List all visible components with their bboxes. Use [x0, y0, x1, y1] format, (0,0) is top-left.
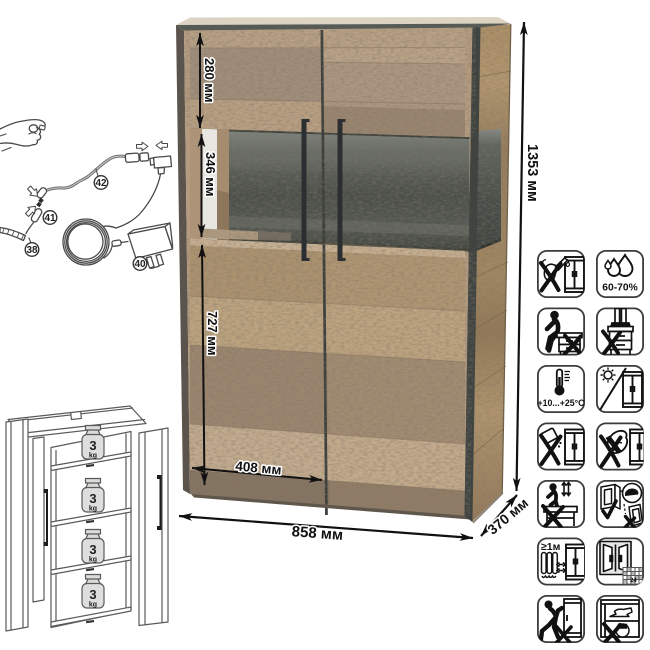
svg-text:346 мм: 346 мм: [203, 152, 218, 197]
svg-text:≥1м: ≥1м: [541, 541, 561, 553]
svg-text:42: 42: [95, 178, 107, 189]
svg-text:+10...+25°C: +10...+25°C: [537, 398, 585, 408]
svg-text:3: 3: [89, 587, 96, 602]
svg-text:kg: kg: [89, 557, 97, 564]
svg-text:40: 40: [134, 259, 146, 270]
svg-text:60-70%: 60-70%: [602, 283, 638, 294]
svg-text:kg: kg: [89, 602, 97, 609]
svg-text:3: 3: [89, 542, 96, 557]
svg-text:280 мм: 280 мм: [202, 58, 217, 103]
svg-text:41: 41: [44, 213, 56, 224]
svg-text:3: 3: [89, 438, 96, 453]
svg-text:kg: kg: [89, 453, 97, 460]
svg-text:kg: kg: [89, 506, 97, 513]
svg-text:727 мм: 727 мм: [205, 311, 220, 356]
svg-text:24: 24: [630, 578, 637, 584]
svg-text:1353 мм: 1353 мм: [524, 144, 540, 202]
svg-text:38: 38: [26, 245, 38, 256]
svg-text:3: 3: [89, 491, 96, 506]
